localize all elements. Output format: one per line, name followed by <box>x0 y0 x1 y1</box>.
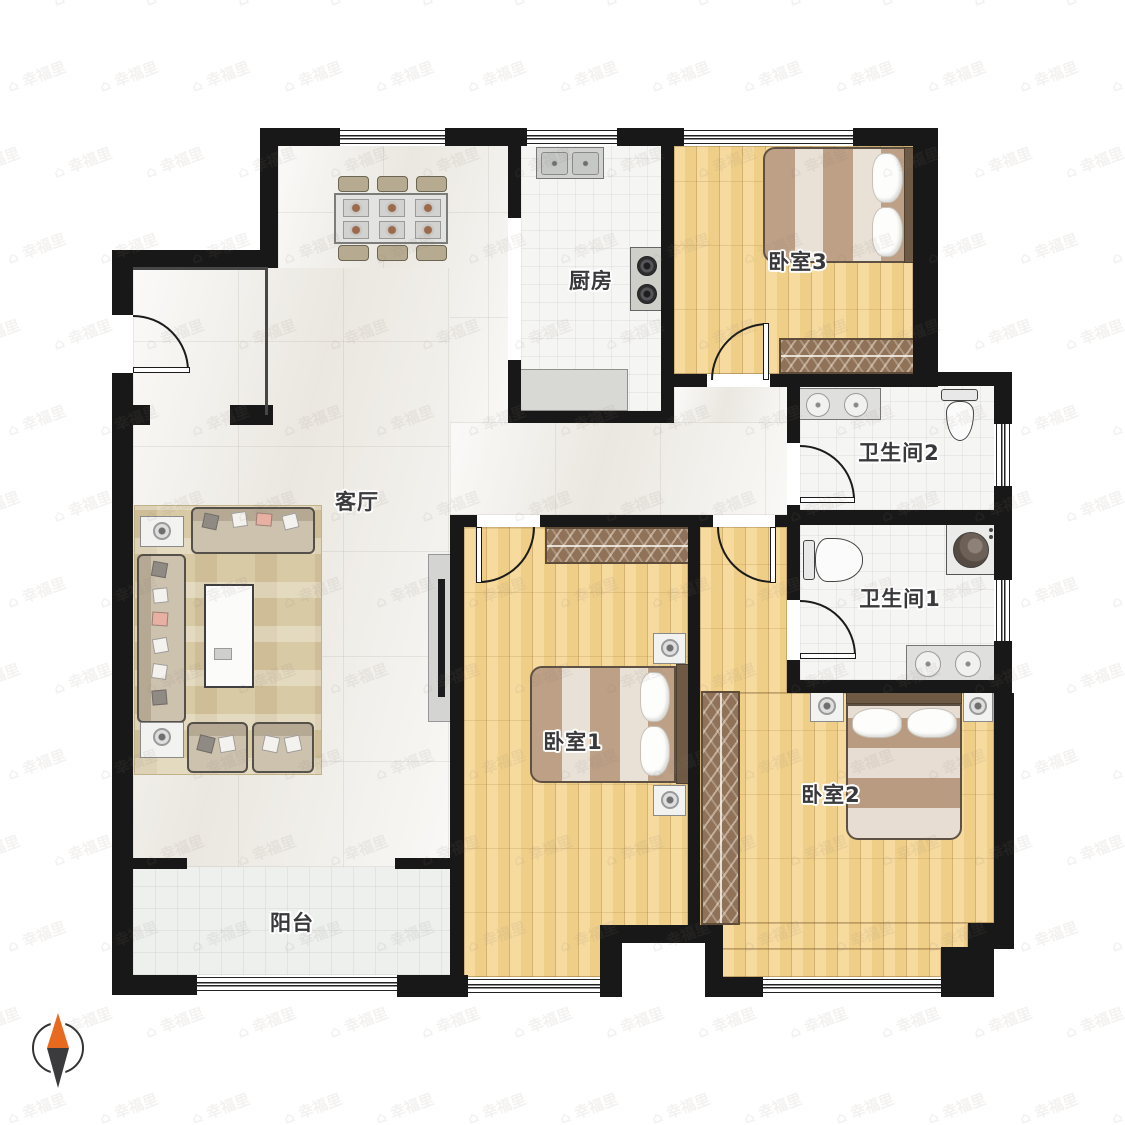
room-label-living-room: 客厅 <box>335 486 379 516</box>
wall <box>617 128 684 146</box>
lamp-icon <box>661 639 679 657</box>
table-decor <box>214 648 232 660</box>
watermark: ⌂ 幸福里 <box>326 1002 390 1043</box>
sink-basin <box>572 152 599 175</box>
watermark: ⌂ 幸福里 <box>510 1002 574 1043</box>
dining-chair <box>377 176 408 192</box>
watermark: ⌂ 幸福里 <box>970 1002 1034 1043</box>
wall <box>787 510 1012 525</box>
watermark: ⌂ 幸福里 <box>234 1002 298 1043</box>
bathroom1-door-leaf <box>800 653 856 659</box>
sofa-pillow <box>151 689 167 705</box>
wall <box>787 660 800 693</box>
room-label-bathroom1: 卫生间1 <box>859 583 941 613</box>
watermark: ⌂ 幸福里 <box>556 1088 620 1125</box>
wardrobe-bedroom3 <box>779 338 922 374</box>
sofa-pillow <box>152 611 169 626</box>
watermark: ⌂ 幸福里 <box>1062 1002 1125 1043</box>
lamp-icon <box>153 728 171 746</box>
pillow <box>640 672 670 722</box>
wall <box>994 693 1014 923</box>
dining-chair <box>338 245 369 261</box>
window <box>527 130 617 144</box>
watermark: ⌂ 幸福里 <box>280 1088 344 1125</box>
sink-basin <box>541 152 568 175</box>
outside-corner <box>994 949 1012 997</box>
coffee-table <box>204 584 254 688</box>
nightstand <box>653 785 686 816</box>
sofa-pillow <box>255 512 272 526</box>
wall <box>787 386 800 443</box>
wash-basin <box>955 651 981 677</box>
wall <box>994 517 1012 580</box>
window <box>996 580 1010 641</box>
toilet-tank <box>941 389 978 401</box>
entry-door-leaf <box>133 367 190 373</box>
sofa-pillow <box>262 735 281 754</box>
outside-area <box>938 128 1125 372</box>
outside-notch <box>622 943 705 1000</box>
nightstand <box>653 633 686 664</box>
side-table <box>140 722 184 758</box>
pillow <box>907 708 957 738</box>
watermark: ⌂ 幸福里 <box>464 1088 528 1125</box>
hallway-floor-east <box>674 387 787 423</box>
wall <box>674 374 707 387</box>
dining-chair <box>416 245 447 261</box>
wall <box>661 146 674 423</box>
wall <box>705 977 763 997</box>
stove-burner <box>637 256 657 276</box>
toilet-tank <box>803 540 815 580</box>
bedroom-2-floor-step2 <box>700 949 941 977</box>
placemat <box>343 221 369 239</box>
watermark: ⌂ 幸福里 <box>188 1088 252 1125</box>
stove <box>630 247 663 311</box>
watermark: ⌂ 幸福里 <box>372 1088 436 1125</box>
wall <box>133 858 187 869</box>
wardrobe-bedroom1 <box>545 527 691 564</box>
outside-area <box>1012 370 1125 1000</box>
dining-chair <box>377 245 408 261</box>
lamp-icon <box>153 522 171 540</box>
sofa-pillow <box>231 511 248 528</box>
watermark: ⌂ 幸福里 <box>878 1002 942 1043</box>
wall <box>994 372 1012 424</box>
watermark: ⌂ 幸福里 <box>740 1088 804 1125</box>
room-label-bedroom1: 卧室1 <box>543 726 603 756</box>
window <box>468 979 600 993</box>
side-table <box>140 516 184 547</box>
dining-table <box>334 193 448 244</box>
wall <box>112 250 278 268</box>
wall <box>445 128 527 146</box>
window <box>763 979 941 993</box>
vanity-bathroom1 <box>906 645 995 681</box>
watermark: ⌂ 幸福里 <box>786 1002 850 1043</box>
lamp-icon <box>661 791 679 809</box>
bedroom3-door-leaf <box>763 323 769 380</box>
dining-chair <box>416 176 447 192</box>
wall <box>913 128 938 386</box>
sofa-pillow <box>152 587 168 603</box>
sofa-pillow <box>151 561 168 578</box>
watermark: ⌂ 幸福里 <box>832 1088 896 1125</box>
washer-drum <box>953 532 989 568</box>
room-label-kitchen: 厨房 <box>569 265 613 295</box>
wall <box>787 527 800 600</box>
placemat <box>343 199 369 217</box>
washer-knob <box>989 535 993 539</box>
window <box>340 130 445 144</box>
outside-area <box>0 0 1125 128</box>
compass-needle-icon <box>47 1048 69 1088</box>
hallway-floor <box>450 423 787 515</box>
watermark: ⌂ 幸福里 <box>418 1002 482 1043</box>
bedroom-2-floor-step1 <box>700 923 968 949</box>
vanity-bathroom2 <box>797 388 881 420</box>
bedroom2-door-leaf <box>770 527 776 583</box>
wall <box>800 680 1012 693</box>
lamp-icon <box>818 697 836 715</box>
window <box>684 130 853 144</box>
sofa-pillow <box>218 735 237 754</box>
wash-basin <box>844 393 868 417</box>
kitchen-sink <box>536 147 604 179</box>
plant-icon <box>217 612 243 638</box>
sofa-pillow <box>151 663 168 680</box>
wardrobe-bedroom2 <box>701 691 740 925</box>
watermark: ⌂ 幸福里 <box>648 1088 712 1125</box>
room-label-bedroom2: 卧室2 <box>801 779 861 809</box>
headboard <box>846 692 962 704</box>
pillow <box>852 708 902 738</box>
washing-machine <box>946 523 996 575</box>
kitchen-counter <box>517 369 628 411</box>
watermark: ⌂ 幸福里 <box>142 1002 206 1043</box>
wall <box>395 858 451 869</box>
tv-icon <box>438 579 445 697</box>
wall <box>112 250 133 315</box>
foyer-line <box>265 267 268 415</box>
floor-plan: 厨房 卧室3 卫生间2 卫生间1 客厅 卧室1 卧室2 阳台 北 ⌂ 幸福里⌂ … <box>0 0 1125 1125</box>
wall <box>600 925 622 997</box>
room-label-bedroom3: 卧室3 <box>768 246 828 276</box>
wall <box>112 975 197 995</box>
washer-knob <box>989 528 993 532</box>
wash-basin <box>806 393 830 417</box>
sofa-pillow <box>152 637 169 654</box>
bedroom1-door-leaf <box>476 527 482 583</box>
pillow <box>640 726 670 776</box>
wall <box>450 515 464 997</box>
compass-needle-icon <box>47 1013 69 1048</box>
wall <box>508 411 674 423</box>
wall <box>968 923 1014 949</box>
wash-basin <box>915 651 941 677</box>
watermark: ⌂ 幸福里 <box>1016 1088 1080 1125</box>
placemat <box>379 199 405 217</box>
nightstand <box>810 691 844 722</box>
watermark: ⌂ 幸福里 <box>602 1002 666 1043</box>
room-label-bathroom2: 卫生间2 <box>858 437 940 467</box>
wall <box>112 373 133 993</box>
watermark: ⌂ 幸福里 <box>1108 1088 1125 1125</box>
wall <box>112 405 150 425</box>
watermark: ⌂ 幸福里 <box>924 1088 988 1125</box>
sofa-pillow <box>284 735 303 754</box>
wall <box>508 146 521 218</box>
placemat <box>379 221 405 239</box>
pillow <box>872 207 903 257</box>
outside-area <box>0 128 260 250</box>
pillow <box>872 153 903 203</box>
wall <box>775 515 800 527</box>
bathroom2-door-leaf <box>800 497 855 503</box>
foyer-line <box>133 267 268 270</box>
stove-burner <box>637 284 657 304</box>
sofa-pillow <box>202 513 220 531</box>
wall <box>260 128 278 268</box>
nightstand <box>963 691 993 722</box>
placemat <box>415 221 441 239</box>
wall <box>688 515 700 925</box>
watermark: ⌂ 幸福里 <box>694 1002 758 1043</box>
wall <box>397 975 468 997</box>
window <box>197 977 397 991</box>
room-label-balcony: 阳台 <box>270 907 314 937</box>
dining-chair <box>338 176 369 192</box>
placemat <box>415 199 441 217</box>
lamp-icon <box>969 697 987 715</box>
wall <box>941 947 994 997</box>
window <box>996 424 1010 486</box>
